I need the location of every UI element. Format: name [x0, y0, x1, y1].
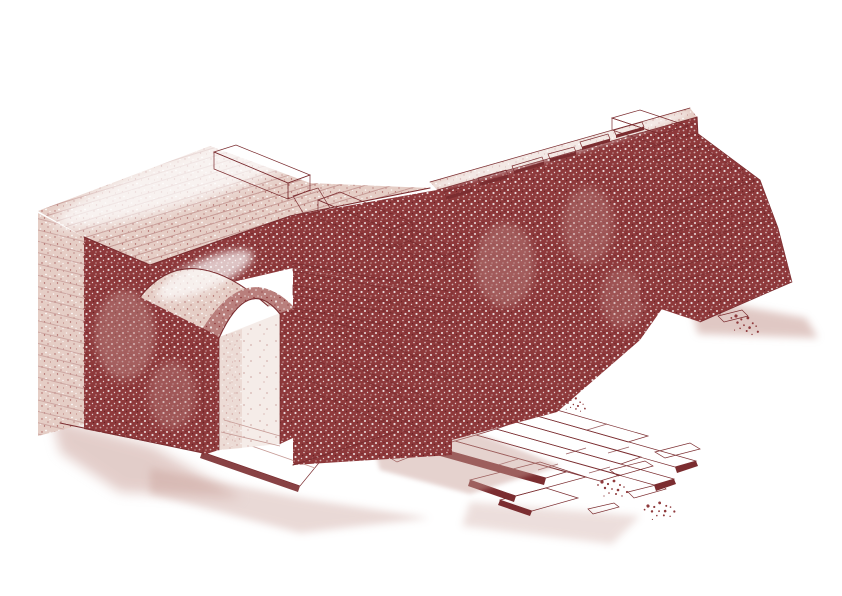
illustration-canvas — [0, 0, 842, 596]
rubble-cluster — [597, 480, 628, 497]
pier-weathering — [95, 290, 155, 380]
portal-jamb-right — [280, 308, 295, 444]
portal-interior-sidewall — [219, 329, 242, 450]
wall-weathering-2 — [562, 187, 614, 263]
wall-weathering-1 — [475, 223, 535, 307]
wall-weathering-3 — [600, 268, 644, 328]
rubble-cluster — [643, 499, 676, 521]
pier-left-face-hatch — [38, 213, 84, 436]
pavement-fragments — [588, 443, 700, 514]
middle-block — [293, 263, 452, 465]
ruin-engraving — [0, 0, 842, 596]
ruin-body — [640, 133, 792, 322]
pier-weathering-2 — [148, 361, 196, 429]
middle-block-face — [293, 268, 452, 465]
shadow-pavement-left — [150, 468, 430, 533]
portal-jamb-left — [203, 328, 219, 455]
right-stepped-ruin — [640, 133, 792, 322]
